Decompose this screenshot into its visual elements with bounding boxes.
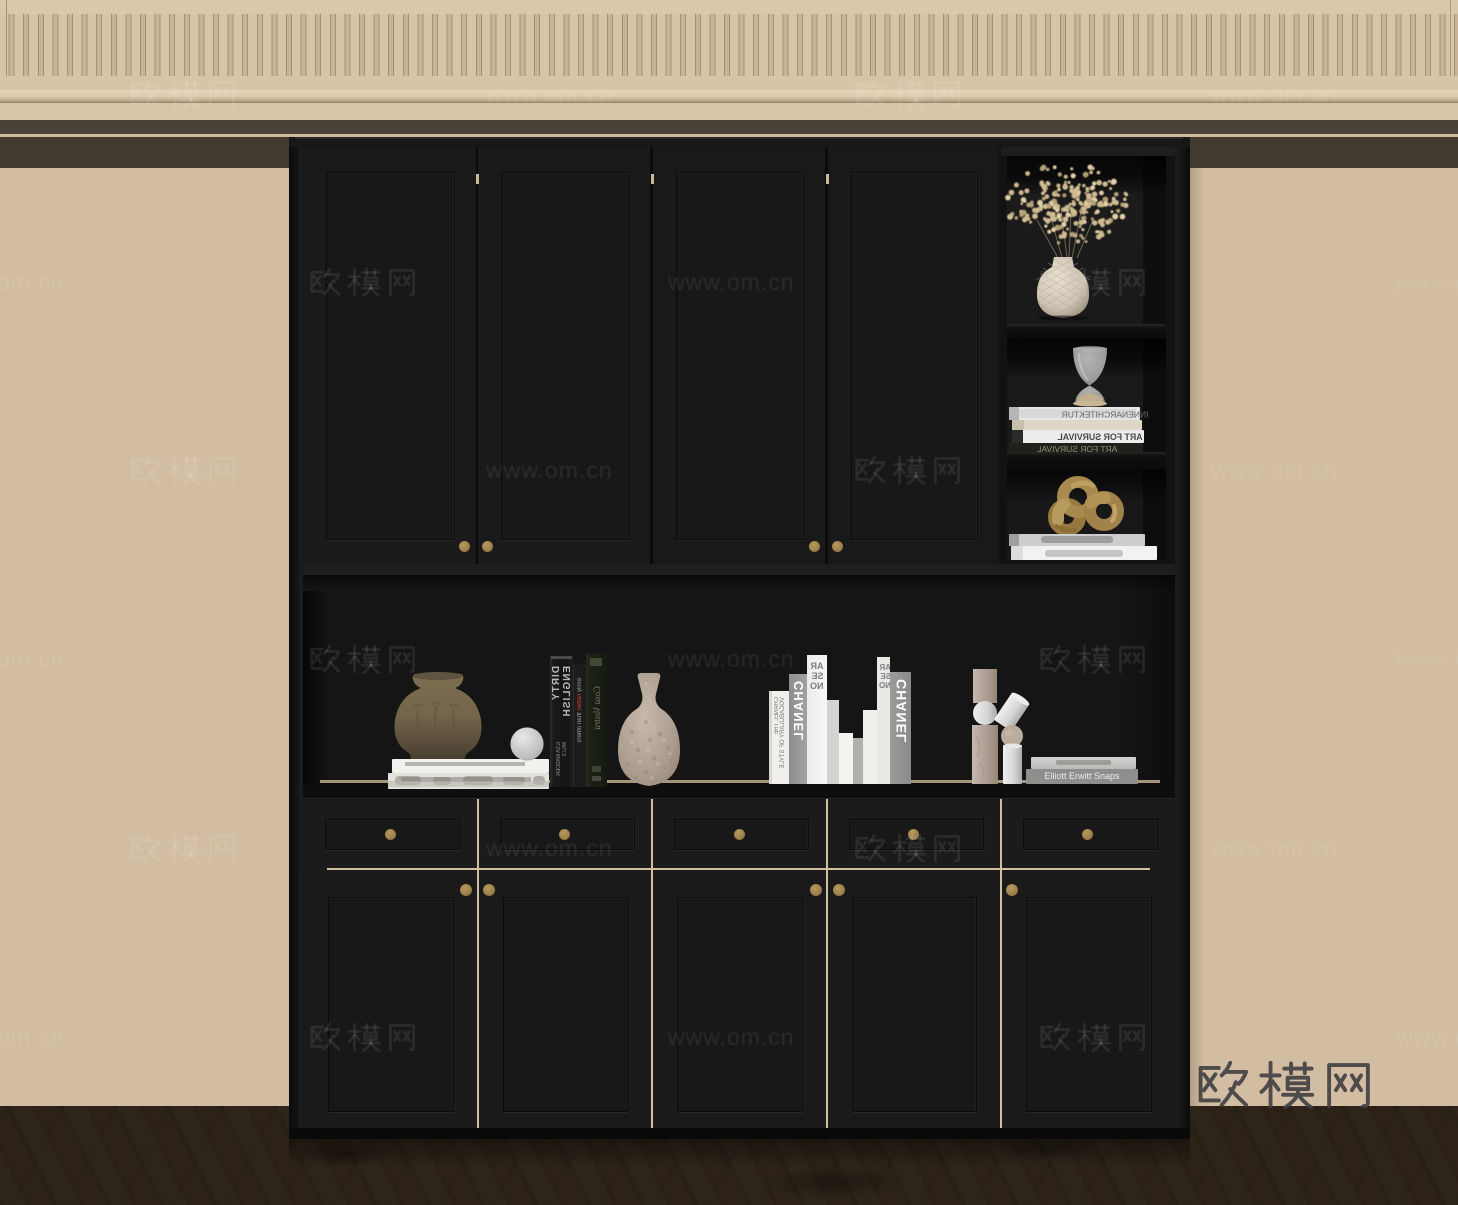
svg-text:ART FOR SURVIVAL: ART FOR SURVIVAL xyxy=(1036,444,1117,454)
svg-text:ART FOR SURVIVAL: ART FOR SURVIVAL xyxy=(1057,432,1143,442)
svg-text:INNENARCHITEKTUR: INNENARCHITEKTUR xyxy=(1062,410,1149,420)
